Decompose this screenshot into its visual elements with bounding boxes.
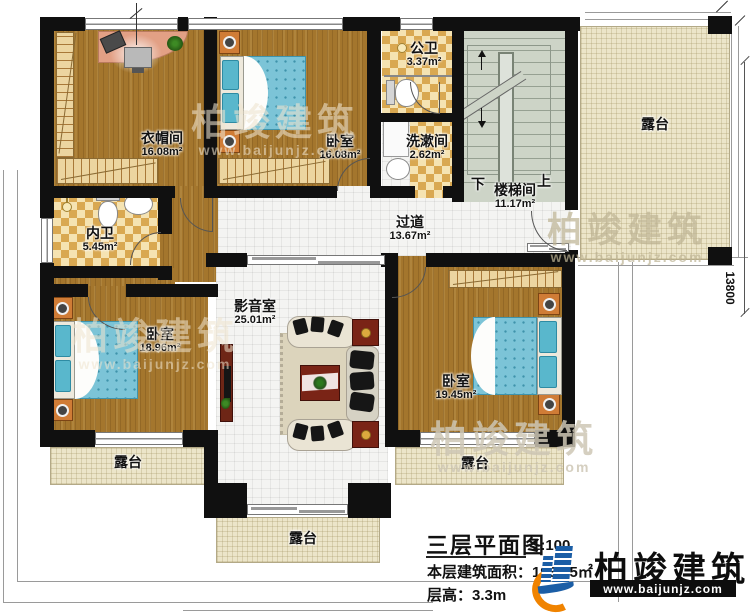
axis-tick [735,15,746,26]
wall [204,17,217,198]
dimension-tick [740,308,749,317]
stair-arrow-down [478,121,486,128]
bed-pillow [539,321,557,353]
roof-outline-line [3,602,433,603]
room-label-washroom: 洗漱间2.62m² [398,133,456,162]
title-underline [426,556,526,558]
brand-logo-icon [530,542,590,604]
room-label-cloakroom: 衣帽间16.08m² [128,130,196,159]
wall [381,113,454,122]
door-leaf [212,198,213,232]
wall [217,186,337,198]
sofa-cushion [310,316,324,332]
room-label-bedroom-right: 卧室19.45m² [428,373,484,402]
plant-leaf [221,398,230,409]
terrace-label-bottom-left: 露台 [103,454,153,470]
towel-bar [384,75,452,77]
wardrobe-hatch [56,158,158,184]
door-leaf [439,82,440,114]
room-label-inner-bath: 内卫5.45m² [76,225,124,254]
nightstand [538,393,560,415]
window [41,218,53,263]
terrace-label-bottom-right: 露台 [450,455,500,471]
stair-arrow-up [478,50,486,57]
window [420,432,535,445]
wall [348,483,391,518]
nightstand [219,31,240,54]
monitor-base [132,68,144,73]
terrace-label-bottom-center: 露台 [278,530,328,546]
axis-tick [716,0,728,12]
window [95,432,183,445]
wardrobe-hatch [448,270,562,288]
wall [385,430,420,447]
wall [206,253,247,267]
terrace-label-right: 露台 [630,116,680,132]
floor-plan-canvas: 衣帽间16.08m² 卧室16.08m² 公卫3.37m² 洗漱间2.62m² … [0,0,750,613]
room-label-bedroom-top: 卧室16.08m² [312,133,368,162]
bed-pillow [55,325,71,357]
wall [178,17,188,31]
bed-pillow [539,356,557,388]
stair-rail [498,52,514,184]
wall [204,483,247,518]
wall [426,253,565,267]
recliner-seat [349,391,375,412]
wall [40,430,95,447]
floor-height-note: 层高：3.3m [427,584,506,605]
roof-outline-line [632,262,633,581]
wall [562,256,575,447]
nightstand [52,399,73,421]
bed-pillow [222,60,239,90]
window [400,18,433,30]
desk-plant [167,36,183,51]
roof-outline-line [3,170,4,603]
wall [40,186,175,198]
tv [224,366,231,402]
stair-arrow-shaft [481,56,482,70]
stair-down-label: 下 [470,176,486,192]
nightstand [538,293,560,315]
recliner-seat [349,350,375,370]
toilet-bowl [98,201,118,228]
terrace-column [708,247,732,265]
wall [158,186,172,234]
room-label-stairwell: 楼梯间11.17m² [486,182,544,211]
toilet-tank [386,80,395,105]
terrace-railing-line [585,12,731,13]
bed-pillow [222,93,239,123]
recliner-seat [349,371,374,391]
nightstand [219,130,240,153]
window [188,18,343,30]
sliding-door [247,504,348,515]
window [85,18,178,30]
brand-website-bar: www.baijunjz.com [590,580,736,597]
shower-head [62,202,72,212]
nightstand [52,297,73,319]
room-label-public-bath: 公卫3.37m² [402,40,446,69]
wall [40,284,88,297]
bed-pillow [55,360,71,392]
sliding-door [247,255,385,265]
table-plant [313,376,327,390]
wall [565,17,578,210]
room-label-corridor: 过道13.67m² [384,214,436,243]
wall [126,284,218,297]
end-table [352,319,379,346]
wardrobe-hatch [56,32,74,158]
terrace-railing-line [738,26,739,258]
dimension-value: 13800 [723,266,737,310]
dimension-line [744,62,745,314]
terrace-column [708,16,732,34]
wall [452,17,464,202]
brand-website: www.baijunjz.com [603,582,723,596]
roof-outline-line [17,170,18,582]
wall [40,266,172,278]
end-table [352,421,379,448]
stair-arrow-shaft [481,108,482,122]
room-label-media-room: 影音室25.01m² [224,298,286,327]
wall [370,186,415,198]
room-label-bedroom-left: 卧室18.96m² [132,326,188,355]
terrace-railing-line [731,26,732,258]
computer-monitor [124,47,152,68]
sofa-cushion [310,425,324,441]
wardrobe-hatch [218,158,330,184]
roof-outline-line [183,610,433,611]
wall [183,430,218,447]
dimension-tick [740,56,749,65]
roof-outline-line [578,265,734,266]
terrace-right [580,26,730,260]
axis-tick [136,3,137,45]
